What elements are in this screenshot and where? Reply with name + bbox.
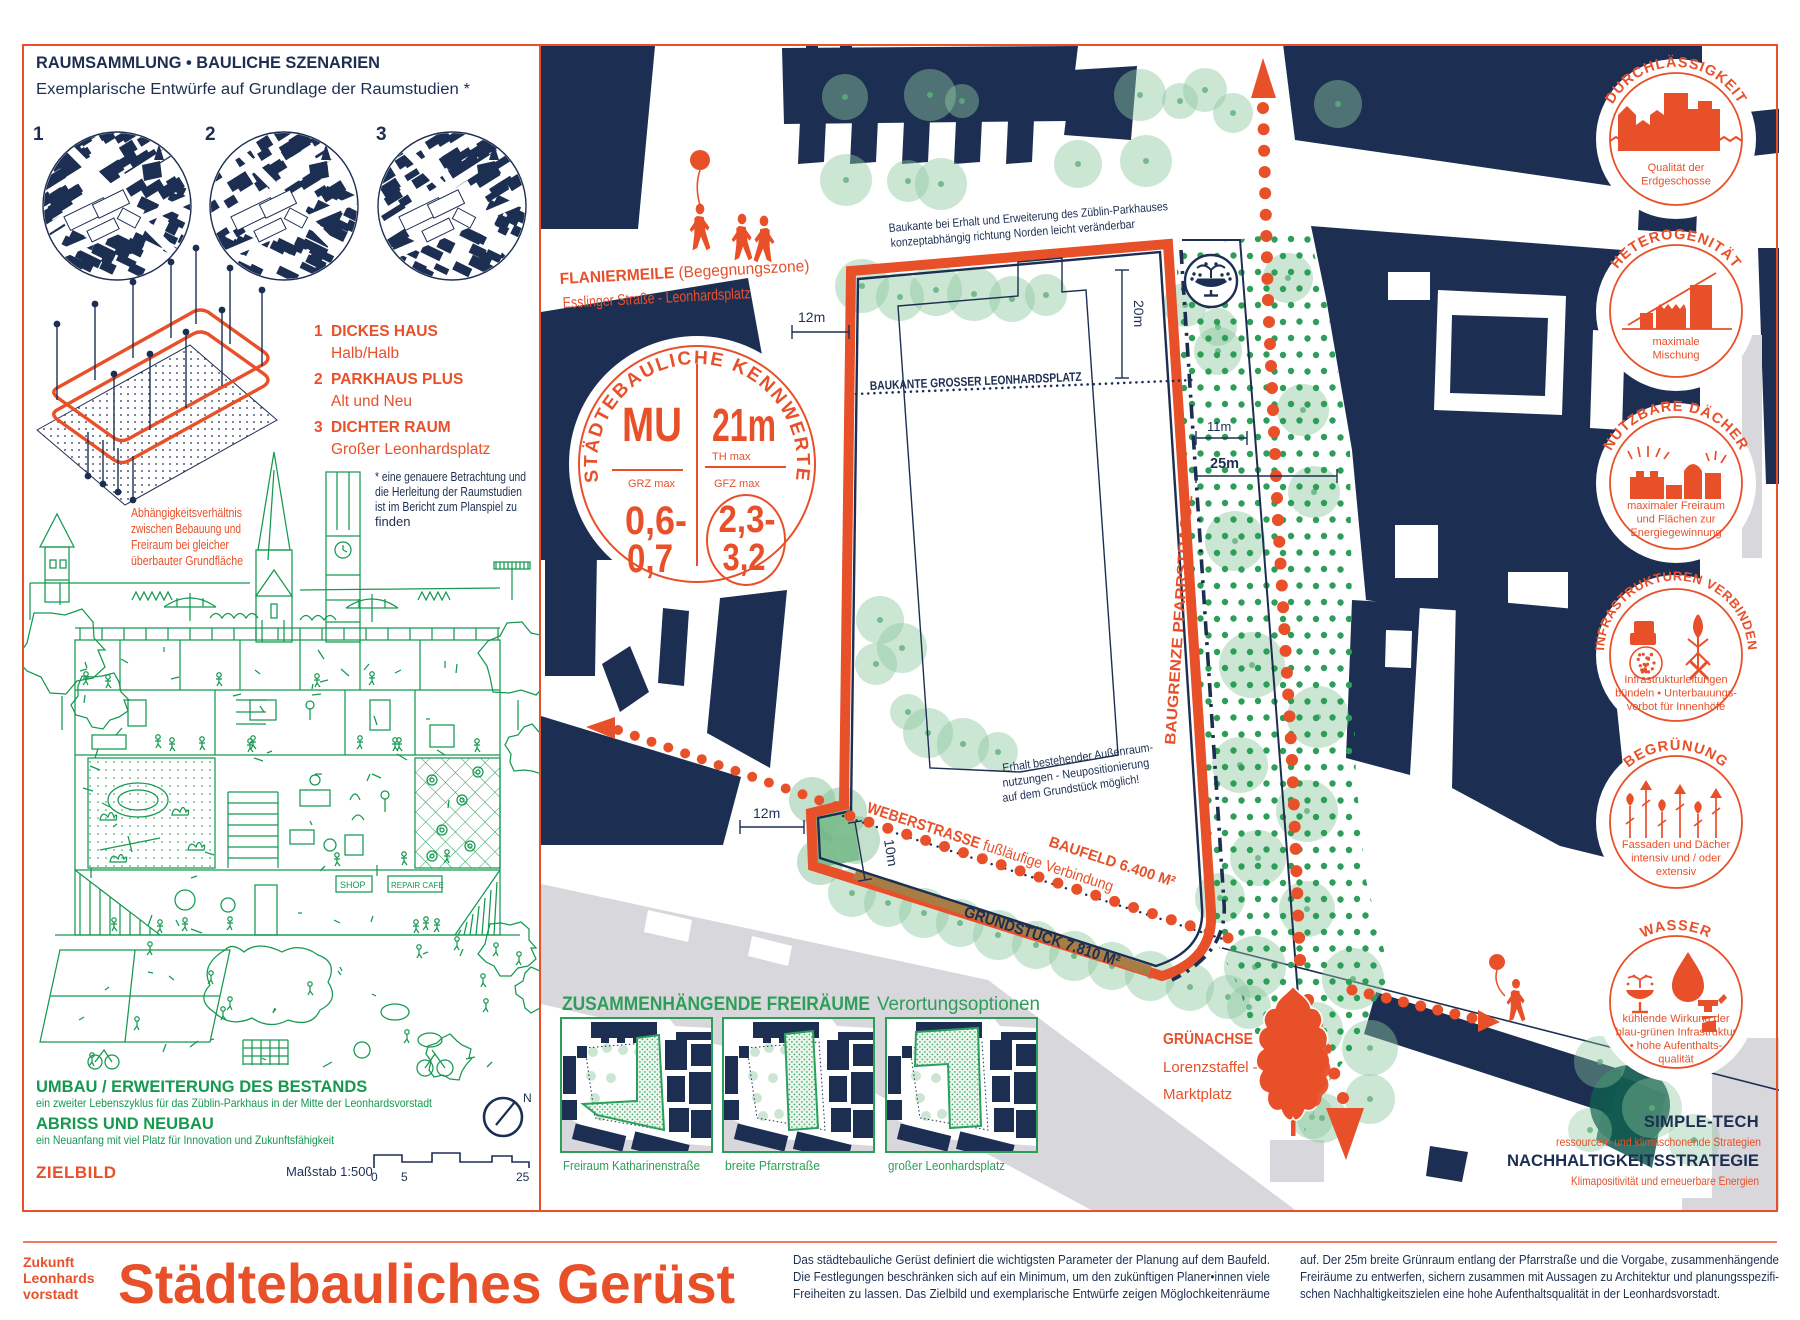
svg-text:RAUMSAMMLUNG • BAULICHE SZENAR: RAUMSAMMLUNG • BAULICHE SZENARIEN	[36, 54, 380, 72]
svg-text:maximaler Freiraum: maximaler Freiraum	[1627, 500, 1725, 512]
svg-text:Klimapositivität und erneuerba: Klimapositivität und erneuerbare Energie…	[1571, 1174, 1759, 1188]
svg-text:die Herleitung der Raumstudien: die Herleitung der Raumstudien	[375, 484, 522, 499]
svg-text:Erdgeschosse: Erdgeschosse	[1641, 176, 1711, 188]
svg-text:Das städtebauliche Gerüst defi: Das städtebauliche Gerüst definiert die …	[793, 1253, 1270, 1267]
svg-text:Zukunft: Zukunft	[23, 1254, 75, 1270]
svg-text:Abhängigkeitsverhältnis: Abhängigkeitsverhältnis	[131, 505, 242, 520]
svg-text:Exemplarische Entwürfe auf Gru: Exemplarische Entwürfe auf Grundlage der…	[36, 81, 470, 98]
svg-text:NACHHALTIGKEITSSTRATEGIE: NACHHALTIGKEITSSTRATEGIE	[1507, 1152, 1759, 1170]
svg-text:ressourcen- und klimaschonende: ressourcen- und klimaschonende Strategie…	[1556, 1135, 1761, 1149]
svg-text:blau-grünen Infrastruktur: blau-grünen Infrastruktur	[1616, 1027, 1737, 1039]
svg-text:Die Festlegungen beschränken s: Die Festlegungen beschränken sich auf ei…	[793, 1270, 1270, 1284]
svg-text:Städtebauliches Gerüst: Städtebauliches Gerüst	[118, 1252, 735, 1315]
svg-text:DICKES HAUS: DICKES HAUS	[331, 323, 438, 340]
svg-text:TH max: TH max	[712, 451, 751, 463]
svg-text:breite Pfarrstraße: breite Pfarrstraße	[725, 1158, 820, 1173]
svg-text:5: 5	[401, 1170, 408, 1184]
svg-text:MU: MU	[622, 399, 682, 452]
svg-text:Marktplatz: Marktplatz	[1163, 1086, 1232, 1103]
svg-text:ein zweiter Lebenszyklus für d: ein zweiter Lebenszyklus für das Züblin-…	[36, 1096, 433, 1110]
svg-text:Verortungsoptionen: Verortungsoptionen	[877, 994, 1040, 1015]
svg-text:Fassaden und Dächer: Fassaden und Dächer	[1622, 839, 1731, 851]
svg-text:ein Neuanfang mit viel Platz f: ein Neuanfang mit viel Platz für Innovat…	[36, 1133, 335, 1147]
svg-text:überbauter Grundfläche: überbauter Grundfläche	[131, 553, 243, 568]
svg-text:schen Nachhaltigkeitszielen ei: schen Nachhaltigkeitszielen eine hohe Au…	[1300, 1287, 1720, 1301]
svg-text:20m: 20m	[1131, 300, 1147, 327]
svg-text:Mischung: Mischung	[1652, 350, 1699, 362]
svg-text:bündeln • Unterbauungs-: bündeln • Unterbauungs-	[1615, 688, 1737, 700]
svg-text:UMBAU / ERWEITERUNG DES BESTAN: UMBAU / ERWEITERUNG DES BESTANDS	[36, 1078, 367, 1096]
svg-text:Freiraum bei gleicher: Freiraum bei gleicher	[131, 537, 230, 552]
svg-text:zwischen Bebauung und: zwischen Bebauung und	[131, 521, 241, 536]
svg-text:großer Leonhardsplatz: großer Leonhardsplatz	[888, 1158, 1005, 1173]
svg-text:DICHTER RAUM: DICHTER RAUM	[331, 419, 451, 436]
svg-text:N: N	[523, 1091, 532, 1105]
svg-text:* eine genauere Betrachtung un: * eine genauere Betrachtung und	[375, 469, 526, 484]
svg-text:ist im Bericht zum Planspiel z: ist im Bericht zum Planspiel zu	[375, 499, 517, 514]
svg-text:extensiv: extensiv	[1656, 866, 1697, 878]
svg-text:25m: 25m	[1210, 456, 1239, 472]
svg-text:Großer Leonhardsplatz: Großer Leonhardsplatz	[331, 441, 490, 458]
svg-text:kühlende Wirkung der: kühlende Wirkung der	[1622, 1013, 1729, 1025]
svg-text:12m: 12m	[753, 805, 780, 821]
svg-text:ABRISS UND NEUBAU: ABRISS UND NEUBAU	[36, 1115, 214, 1133]
svg-text:Leonhards: Leonhards	[23, 1270, 95, 1286]
svg-text:GRZ max: GRZ max	[628, 478, 676, 490]
svg-text:0,7: 0,7	[627, 537, 673, 581]
svg-text:finden: finden	[375, 514, 410, 529]
svg-text:3,2: 3,2	[723, 537, 766, 579]
svg-text:Freiräume zu entwerfen, sicher: Freiräume zu entwerfen, sichern zusammen…	[1300, 1270, 1779, 1284]
svg-text:Halb/Halb: Halb/Halb	[331, 345, 399, 362]
svg-text:und Flächen zur: und Flächen zur	[1637, 514, 1716, 526]
svg-text:3: 3	[376, 124, 387, 145]
svg-text:Energiegewinnung: Energiegewinnung	[1630, 527, 1721, 539]
svg-text:GFZ max: GFZ max	[714, 478, 760, 490]
svg-text:PARKHAUS PLUS: PARKHAUS PLUS	[331, 371, 463, 388]
svg-text:11m: 11m	[1207, 419, 1231, 434]
svg-text:1: 1	[314, 323, 323, 340]
svg-text:2: 2	[314, 371, 323, 388]
svg-text:auf. Der 25m breite Grünraum e: auf. Der 25m breite Grünraum entlang der…	[1300, 1253, 1779, 1267]
svg-text:SIMPLE-TECH: SIMPLE-TECH	[1644, 1113, 1759, 1131]
svg-text:2,3-: 2,3-	[719, 499, 776, 541]
svg-text:qualität: qualität	[1658, 1054, 1693, 1066]
svg-text:2: 2	[205, 124, 216, 145]
svg-text:Maßstab 1:500: Maßstab 1:500	[286, 1164, 373, 1179]
svg-text:intensiv und / oder: intensiv und / oder	[1631, 853, 1721, 865]
svg-text:• hohe Aufenthalts-: • hohe Aufenthalts-	[1630, 1040, 1723, 1052]
svg-text:3: 3	[314, 419, 323, 436]
svg-text:ZUSAMMENHÄNGENDE FREIRÄUME: ZUSAMMENHÄNGENDE FREIRÄUME	[562, 994, 870, 1015]
svg-text:Alt und Neu: Alt und Neu	[331, 393, 412, 410]
svg-text:1: 1	[33, 124, 44, 145]
svg-text:Qualität der: Qualität der	[1648, 162, 1705, 174]
svg-text:Infrastrukturleitungen: Infrastrukturleitungen	[1624, 674, 1727, 686]
svg-text:25: 25	[516, 1170, 530, 1184]
svg-text:verbot für Innenhöfe: verbot für Innenhöfe	[1627, 701, 1725, 713]
svg-text:vorstadt: vorstadt	[23, 1286, 79, 1302]
svg-text:ZIELBILD: ZIELBILD	[36, 1163, 117, 1182]
svg-text:21m: 21m	[712, 399, 776, 451]
svg-text:SHOP: SHOP	[340, 880, 366, 890]
svg-text:maximale: maximale	[1652, 336, 1699, 348]
svg-text:0: 0	[371, 1170, 378, 1184]
svg-text:Lorenzstaffel -: Lorenzstaffel -	[1163, 1059, 1258, 1076]
svg-text:12m: 12m	[798, 309, 825, 325]
svg-text:Freiheiten zu lassen. Das Ziel: Freiheiten zu lassen. Das Zielbild und e…	[793, 1287, 1270, 1301]
svg-text:Freiraum Katharinenstraße: Freiraum Katharinenstraße	[563, 1158, 700, 1173]
svg-text:GRÜNACHSE: GRÜNACHSE	[1163, 1029, 1253, 1048]
svg-text:REPAIR CAFE: REPAIR CAFE	[391, 881, 444, 890]
